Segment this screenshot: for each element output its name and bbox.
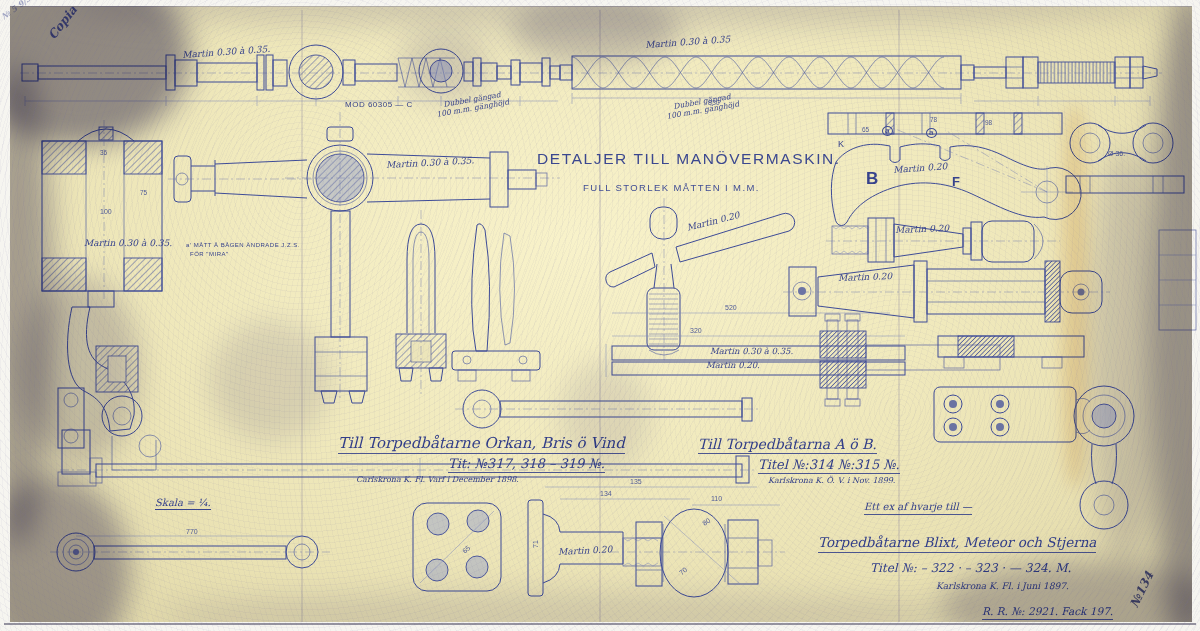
part-letter: K [838,140,845,149]
corner-scribble: № 5 9/34 [0,0,37,20]
part-letter: F [952,175,960,188]
dimension: 80 [701,517,711,527]
dimension: 65 [862,127,869,134]
revision-note: a′ MÅTT Å BÅGEN ÄNDRADE J.Z.S. [186,242,300,248]
archive-number: №134 [1128,570,1155,609]
copia-mark: Copia [46,4,79,42]
dimension: 770 [186,528,198,535]
material-label: Martin 0.30 à 0.35 [645,35,731,50]
dimension: 520 [725,304,737,311]
drawing-content: DETALJER TILL MANÖVERMASKIN. FULL STORLE… [0,0,1200,631]
revision-note: FÖR "MIRA" [190,251,229,257]
dimension: 70 [678,566,688,576]
dimension: 320 [690,327,702,334]
material-label: Martin 0.20 [558,545,612,557]
dimension: 71 [532,540,539,548]
detail-ref: a [926,128,937,138]
material-label: Martin 0.20 [838,272,892,283]
material-label: Martin 0.30 à 0.35. [84,239,172,248]
dimension: 65 [461,544,471,554]
material-label: Martin 0.20. [706,361,760,370]
dimension: 135 [630,478,642,485]
dimension: 75 [140,190,147,197]
scale-note: Skala = ¼. [155,498,211,510]
dimension: 134 [600,490,612,497]
material-label: Martin 0.20 [893,162,948,175]
material-label: Martin 0.20 [686,211,741,233]
dimension: 36 [100,150,107,157]
annotation-layer: Copia№ 5 9/34Martin 0.30 à 0.35.MOD 6030… [0,0,1200,631]
material-label: Martin 0.30 à 0.35. [386,156,474,170]
detail-ref: a [882,126,893,136]
material-label: Martin 0.20 [895,224,949,235]
part-letter: B [866,170,879,187]
dimension: 78 [930,117,937,124]
material-label: Martin 0.30 à 0.35. [710,347,793,356]
blueprint-page: DETALJER TILL MANÖVERMASKIN. FULL STORLE… [0,0,1200,631]
dimension: Ø 36. [1108,150,1125,157]
dimension: 98 [985,120,992,127]
material-label: Martin 0.30 à 0.35. [182,45,270,60]
dimension: 110 [711,495,722,502]
mod-label: MOD 60305 — C [345,101,413,109]
dimension: 830 [708,99,720,106]
dimension: 100 [100,208,112,215]
